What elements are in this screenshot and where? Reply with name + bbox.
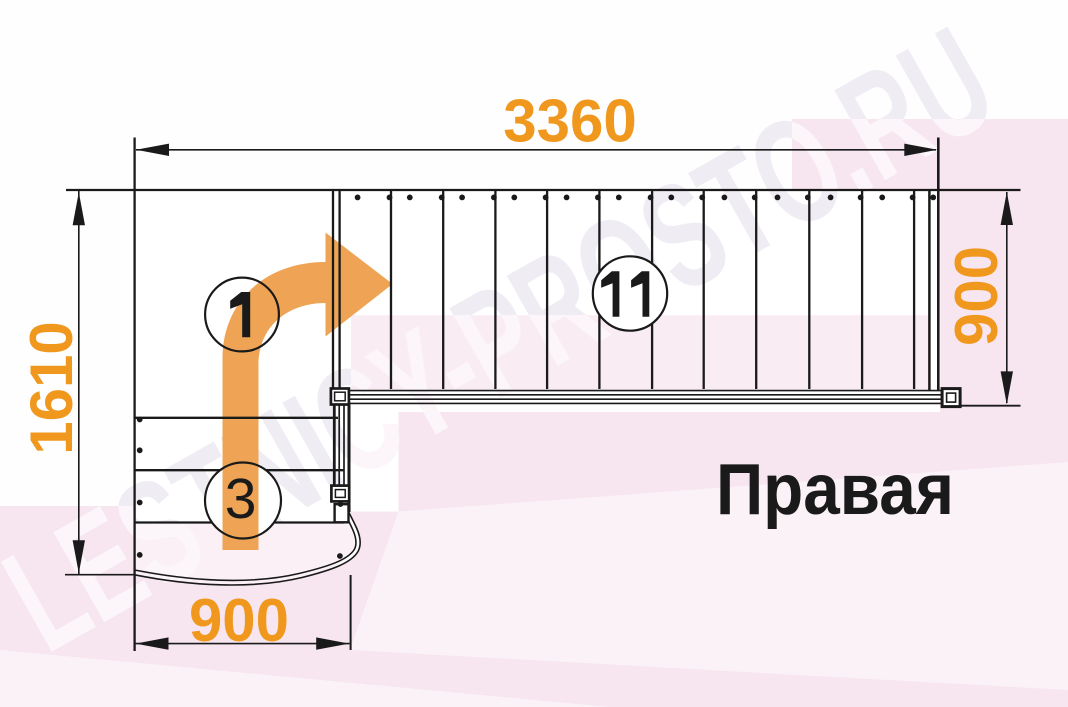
svg-text:1610: 1610 [18,321,85,454]
svg-text:900: 900 [189,587,289,654]
svg-text:3: 3 [225,467,257,531]
svg-text:Правая: Правая [716,450,954,530]
svg-text:3360: 3360 [503,88,636,155]
svg-text:900: 900 [943,246,1010,346]
